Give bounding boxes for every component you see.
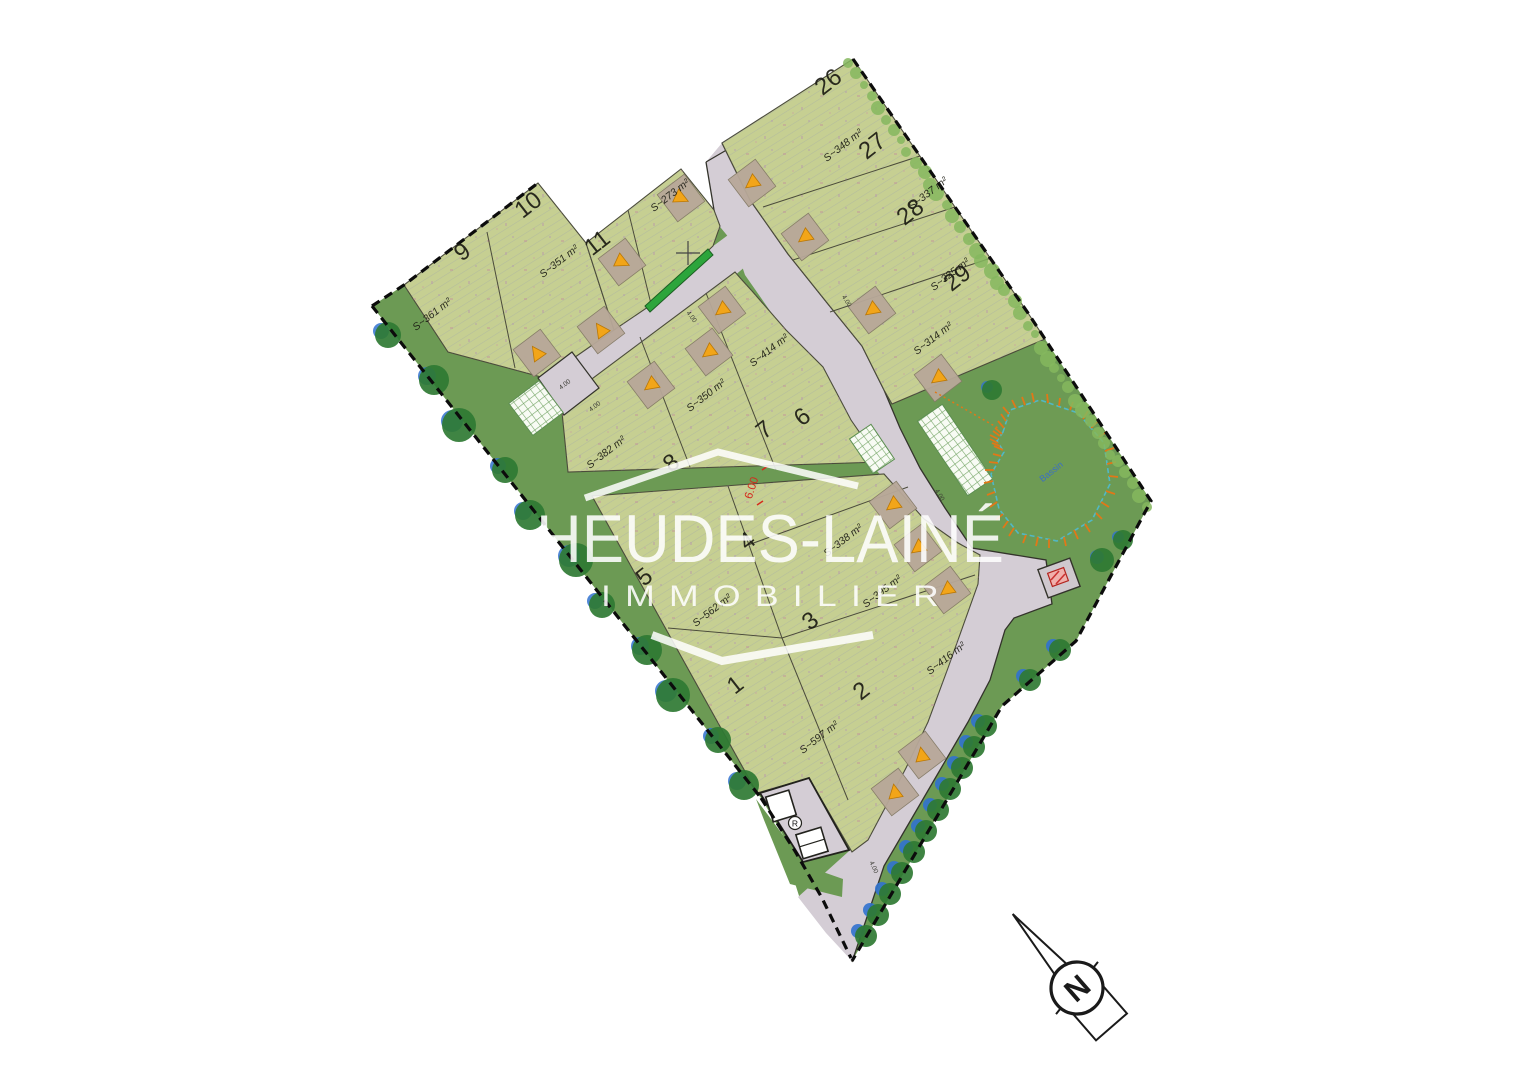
svg-text:HEUDES-LAINÉ: HEUDES-LAINÉ	[536, 501, 1004, 577]
svg-text:R: R	[792, 819, 798, 829]
svg-text:IMMOBILIER: IMMOBILIER	[601, 580, 953, 613]
